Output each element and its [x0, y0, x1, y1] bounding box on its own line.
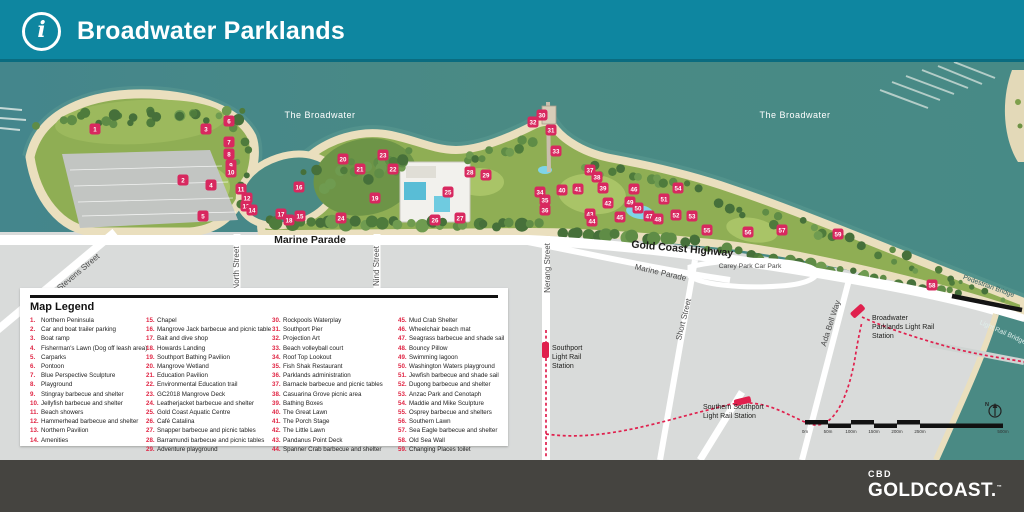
legend-item: 22.Environmental Education trail [146, 380, 272, 389]
tree-icon [735, 246, 743, 254]
poi-marker-25: 25 [443, 187, 454, 198]
tree-icon [634, 173, 642, 181]
tree-icon [534, 218, 543, 227]
legend-item-number: 23. [146, 390, 157, 399]
svg-text:53: 53 [689, 213, 696, 220]
tree-icon [695, 184, 703, 192]
legend-item: 12.Hammerhead barbecue and shelter [30, 417, 146, 426]
tree-icon [572, 227, 583, 238]
poi-marker-40: 40 [557, 185, 568, 196]
tree-icon [301, 169, 307, 175]
legend-item-number: 1. [30, 316, 41, 325]
page-title: Broadwater Parklands [77, 17, 345, 46]
svg-text:40: 40 [559, 187, 566, 194]
poi-marker-48: 48 [653, 214, 664, 225]
svg-text:18: 18 [286, 217, 293, 224]
poi-marker-20: 20 [338, 154, 349, 165]
tree-icon [684, 180, 690, 186]
legend-item: 5.Carparks [30, 353, 146, 362]
svg-text:31: 31 [548, 127, 555, 134]
legend-item-label: Jellyfish barbecue and shelter [41, 400, 123, 407]
tree-icon [407, 219, 415, 227]
legend-item: 16.Mangrove Jack barbecue and picnic tab… [146, 325, 272, 334]
legend-item-number: 28. [146, 436, 157, 445]
svg-text:19: 19 [372, 195, 379, 202]
legend-item-number: 35. [272, 362, 283, 371]
tree-icon [514, 144, 524, 154]
legend-item-number: 43. [272, 436, 283, 445]
svg-text:32: 32 [530, 119, 537, 126]
tree-icon [714, 198, 724, 208]
scale-label: 100m [845, 429, 857, 434]
legend-item-number: 45. [398, 316, 409, 325]
svg-text:57: 57 [779, 227, 786, 234]
legend-item: 14.Amenities [30, 436, 146, 445]
tree-icon [393, 220, 403, 230]
legend-item-number: 54. [398, 399, 409, 408]
poi-marker-55: 55 [702, 225, 713, 236]
poi-marker-18: 18 [284, 215, 295, 226]
legend-item-label: Howards Landing [157, 345, 205, 352]
water-label: The Broadwater [759, 110, 830, 120]
legend-item-label: Old Sea Wall [409, 437, 445, 444]
svg-text:58: 58 [929, 282, 936, 289]
legend-item-number: 40. [272, 408, 283, 417]
legend-item-label: Car and boat trailer parking [41, 326, 116, 333]
legend-item: 31.Southport Pier [272, 325, 398, 334]
tree-icon [60, 116, 68, 124]
poi-marker-46: 46 [629, 184, 640, 195]
legend-item-label: Dugong barbecue and shelter [409, 381, 491, 388]
tree-icon [325, 179, 336, 190]
legend-item-label: Mangrove Wetland [157, 363, 209, 370]
poi-marker-5: 5 [198, 211, 209, 222]
legend-item: 57.Sea Eagle barbecue and shelter [398, 426, 498, 435]
legend-item: 17.Bait and dive shop [146, 334, 272, 343]
legend-item-label: Barramundi barbecue and picnic tables [157, 437, 264, 444]
svg-text:11: 11 [238, 186, 245, 193]
svg-text:21: 21 [357, 166, 364, 173]
legend-item-number: 44. [272, 445, 283, 454]
tree-icon [800, 217, 807, 224]
legend-top-rule [30, 295, 498, 298]
legend-item-label: Projection Art [283, 335, 320, 342]
legend-column: 1.Northern Peninsula2.Car and boat trail… [30, 316, 146, 454]
legend-item-label: Snapper barbecue and picnic tables [157, 427, 256, 434]
tree-icon [203, 117, 210, 124]
svg-text:41: 41 [575, 186, 582, 193]
tree-icon [504, 218, 514, 228]
legend-item-label: Washington Waters playground [409, 363, 495, 370]
legend-item-number: 10. [30, 399, 41, 408]
scale-label: 200m [891, 429, 903, 434]
legend-item-label: Sea Eagle barbecue and shelter [409, 427, 497, 434]
svg-text:47: 47 [646, 213, 653, 220]
tree-icon [311, 165, 322, 176]
svg-text:48: 48 [655, 216, 662, 223]
legend-item-label: Northern Pavilion [41, 427, 88, 434]
legend-item: 50.Washington Waters playground [398, 362, 498, 371]
svg-text:44: 44 [589, 218, 596, 225]
svg-text:5: 5 [201, 213, 205, 220]
legend-item: 45.Mud Crab Shelter [398, 316, 498, 325]
svg-text:15: 15 [297, 213, 304, 220]
legend-item-label: Swimming lagoon [409, 354, 458, 361]
legend-item-label: Roof Top Lookout [283, 354, 331, 361]
tree-icon [874, 252, 882, 260]
tree-icon [610, 229, 620, 239]
poi-marker-42: 42 [603, 198, 614, 209]
legend-item-label: The Great Lawn [283, 409, 327, 416]
tree-icon [363, 174, 374, 185]
legend-item-number: 4. [30, 344, 41, 353]
brand-top: CBD [868, 469, 1002, 479]
legend-item: 47.Seagrass barbecue and shade sail [398, 334, 498, 343]
tree-icon [845, 233, 855, 243]
poi-marker-19: 19 [370, 193, 381, 204]
legend-item-label: Seagrass barbecue and shade sail [409, 335, 504, 342]
street-label: Carey Park Car Park [719, 263, 782, 270]
legend-item: 21.Education Pavilion [146, 371, 272, 380]
legend-item-number: 11. [30, 408, 41, 417]
legend-item-label: Pontoon [41, 363, 64, 370]
legend-item-label: Leatherjacket barbecue and shelter [157, 400, 254, 407]
legend-column: 15.Chapel16.Mangrove Jack barbecue and p… [146, 316, 272, 454]
legend-item-label: Casuarina Grove picnic area [283, 391, 361, 398]
svg-text:45: 45 [617, 214, 624, 221]
legend-item-label: Southport Pier [283, 326, 323, 333]
legend-item: 28.Barramundi barbecue and picnic tables [146, 436, 272, 445]
legend-item-number: 58. [398, 436, 409, 445]
legend-item: 46.Wheelchair beach mat [398, 325, 498, 334]
legend-item-number: 6. [30, 362, 41, 371]
legend-item: 24.Leatherjacket barbecue and shelter [146, 399, 272, 408]
legend-item-label: Barnacle barbecue and picnic tables [283, 381, 383, 388]
legend-item-number: 29. [146, 445, 157, 454]
legend-item-number: 5. [30, 353, 41, 362]
svg-text:30: 30 [539, 112, 546, 119]
tree-icon [725, 204, 735, 214]
tree-icon [350, 216, 361, 227]
tree-icon [969, 284, 974, 289]
legend-item-label: Spanner Crab barbecue and shelter [283, 446, 381, 453]
svg-text:52: 52 [673, 212, 680, 219]
legend-item: 18.Howards Landing [146, 344, 272, 353]
legend-item-number: 55. [398, 408, 409, 417]
legend-item-number: 27. [146, 426, 157, 435]
legend-item: 37.Barnacle barbecue and picnic tables [272, 380, 398, 389]
legend-item-label: Stingray barbecue and shelter [41, 391, 124, 398]
tree-icon [526, 220, 534, 228]
poi-marker-14: 14 [247, 205, 258, 216]
tree-icon [608, 168, 616, 176]
poi-marker-10: 10 [226, 167, 237, 178]
street-label: Nerang Street [543, 242, 552, 293]
legend-item: 44.Spanner Crab barbecue and shelter [272, 445, 398, 454]
legend-item-label: Fisherman's Lawn (Dog off leash area) [41, 345, 147, 352]
legend-item-label: The Little Lawn [283, 427, 325, 434]
legend-item-number: 38. [272, 390, 283, 399]
poi-marker-3: 3 [201, 124, 212, 135]
legend-item: 10.Jellyfish barbecue and shelter [30, 399, 146, 408]
legend-item-number: 3. [30, 334, 41, 343]
legend-item-label: Adventure playground [157, 446, 218, 453]
legend-item: 49.Swimming lagoon [398, 353, 498, 362]
poi-marker-23: 23 [378, 150, 389, 161]
poi-marker-56: 56 [743, 227, 754, 238]
scale-label: 0m [802, 429, 809, 434]
legend-item: 30.Rockpools Waterplay [272, 316, 398, 325]
legend-item: 43.Pandanus Point Deck [272, 436, 398, 445]
legend-item-label: The Porch Stage [283, 418, 329, 425]
tree-icon [902, 250, 912, 260]
tree-icon [505, 148, 514, 157]
tree-icon [175, 112, 184, 121]
tree-icon [32, 122, 40, 130]
svg-text:1: 1 [93, 126, 97, 133]
svg-text:22: 22 [390, 166, 397, 173]
poi-marker-45: 45 [615, 212, 626, 223]
poi-marker-1: 1 [90, 124, 101, 135]
poi-marker-51: 51 [659, 194, 670, 205]
legend-item: 11.Beach showers [30, 408, 146, 417]
poi-marker-7: 7 [224, 137, 235, 148]
legend-item: 34.Roof Top Lookout [272, 353, 398, 362]
legend-column: 45.Mud Crab Shelter46.Wheelchair beach m… [398, 316, 498, 454]
tree-icon [850, 268, 856, 274]
poi-marker-35: 35 [540, 195, 551, 206]
poi-marker-24: 24 [336, 213, 347, 224]
legend-item-label: Hammerhead barbecue and shelter [41, 418, 138, 425]
legend-item-label: Rockpools Waterplay [283, 317, 341, 324]
map-legend: Map Legend 1.Northern Peninsula2.Car and… [20, 288, 508, 446]
legend-item-number: 16. [146, 325, 157, 334]
legend-item-number: 52. [398, 380, 409, 389]
legend-item: 15.Chapel [146, 316, 272, 325]
legend-item-label: Anzac Park and Cenotaph [409, 391, 481, 398]
legend-item-label: Northern Peninsula [41, 317, 94, 324]
legend-item-label: Blue Perspective Sculpture [41, 372, 115, 379]
poi-marker-53: 53 [687, 211, 698, 222]
legend-item-label: Boat ramp [41, 335, 70, 342]
legend-item-number: 14. [30, 436, 41, 445]
poi-marker-15: 15 [295, 211, 306, 222]
poi-marker-31: 31 [546, 125, 557, 136]
legend-item-number: 42. [272, 426, 283, 435]
tree-icon [152, 112, 162, 122]
svg-text:26: 26 [432, 217, 439, 224]
legend-item: 2.Car and boat trailer parking [30, 325, 146, 334]
legend-item-number: 48. [398, 344, 409, 353]
poi-marker-8: 8 [224, 149, 235, 160]
legend-item: 26.Café Catalina [146, 417, 272, 426]
poi-marker-16: 16 [294, 182, 305, 193]
poi-marker-52: 52 [671, 210, 682, 221]
tree-icon [376, 217, 389, 230]
legend-item-label: Beach volleyball court [283, 345, 343, 352]
legend-item-number: 22. [146, 380, 157, 389]
legend-item-number: 26. [146, 417, 157, 426]
svg-text:25: 25 [445, 189, 452, 196]
legend-item-label: Café Catalina [157, 418, 195, 425]
scale-label: 500m [997, 429, 1009, 434]
tree-icon [244, 172, 250, 178]
tree-icon [947, 287, 953, 293]
legend-item-label: Maddie and Mike Sculpture [409, 400, 484, 407]
legend-item-label: Bouncy Pillow [409, 345, 448, 352]
brand-tm: ™ [997, 485, 1002, 491]
svg-text:10: 10 [228, 169, 235, 176]
poi-marker-58: 58 [927, 280, 938, 291]
tree-icon [190, 110, 197, 117]
legend-title: Map Legend [30, 301, 498, 313]
svg-text:56: 56 [745, 229, 752, 236]
legend-item: 7.Blue Perspective Sculpture [30, 371, 146, 380]
tree-icon [774, 212, 782, 220]
legend-item: 56.Southern Lawn [398, 417, 498, 426]
tree-icon [109, 109, 121, 121]
svg-text:8: 8 [227, 151, 231, 158]
svg-text:33: 33 [553, 148, 560, 155]
street-label: North Street [232, 246, 241, 290]
legend-item: 55.Osprey barbecue and shelters [398, 408, 498, 417]
legend-item-number: 18. [146, 344, 157, 353]
legend-item: 25.Gold Coast Aquatic Centre [146, 408, 272, 417]
poi-marker-6: 6 [224, 116, 235, 127]
legend-item-label: Osprey barbecue and shelters [409, 409, 492, 416]
legend-item-number: 25. [146, 408, 157, 417]
legend-item: 38.Casuarina Grove picnic area [272, 390, 398, 399]
tree-icon [348, 158, 355, 165]
tree-icon [129, 113, 138, 122]
pool [404, 182, 426, 200]
poi-marker-38: 38 [592, 172, 603, 183]
poster: i Broadwater Parklands [0, 0, 1024, 512]
legend-item-number: 7. [30, 371, 41, 380]
legend-item-number: 30. [272, 316, 283, 325]
street-label: Nind Street [372, 245, 381, 286]
poi-marker-4: 4 [206, 180, 217, 191]
legend-item-number: 31. [272, 325, 283, 334]
tree-icon [67, 115, 77, 125]
tree-icon [517, 135, 526, 144]
svg-text:59: 59 [835, 231, 842, 238]
legend-item-number: 34. [272, 353, 283, 362]
legend-item-number: 41. [272, 417, 283, 426]
tree-icon [891, 259, 897, 265]
svg-text:14: 14 [249, 207, 256, 214]
legend-item: 58.Old Sea Wall [398, 436, 498, 445]
legend-item-number: 36. [272, 371, 283, 380]
svg-text:42: 42 [605, 200, 612, 207]
legend-column: 30.Rockpools Waterplay31.Southport Pier3… [272, 316, 398, 454]
brand-main: GOLDCOAST. [868, 480, 997, 501]
tree-icon [814, 231, 823, 240]
tree-icon [239, 108, 245, 114]
legend-item-number: 32. [272, 334, 283, 343]
legend-item: 13.Northern Pavilion [30, 426, 146, 435]
poi-marker-59: 59 [833, 229, 844, 240]
legend-item: 42.The Little Lawn [272, 426, 398, 435]
poi-marker-36: 36 [540, 205, 551, 216]
legend-item-number: 17. [146, 334, 157, 343]
legend-item-label: Amenities [41, 437, 68, 444]
poi-marker-39: 39 [598, 183, 609, 194]
street-label: Marine Parade [274, 234, 346, 246]
tree-icon [471, 155, 479, 163]
legend-item-number: 53. [398, 390, 409, 399]
poi-marker-50: 50 [633, 203, 644, 214]
legend-item-label: Beach showers [41, 409, 83, 416]
legend-item-number: 19. [146, 353, 157, 362]
legend-item-number: 8. [30, 380, 41, 389]
tree-icon [616, 164, 625, 173]
tree-icon [1001, 298, 1006, 303]
legend-item: 52.Dugong barbecue and shelter [398, 380, 498, 389]
svg-text:54: 54 [675, 185, 682, 192]
legend-item: 51.Jewfish barbecue and shade sail [398, 371, 498, 380]
legend-item-label: Carparks [41, 354, 66, 361]
svg-text:51: 51 [661, 196, 668, 203]
legend-item: 53.Anzac Park and Cenotaph [398, 390, 498, 399]
legend-item: 40.The Great Lawn [272, 408, 398, 417]
tree-icon [405, 147, 412, 154]
legend-item: 1.Northern Peninsula [30, 316, 146, 325]
legend-item-number: 51. [398, 371, 409, 380]
legend-item: 23.GC2018 Mangrove Deck [146, 390, 272, 399]
poi-marker-21: 21 [355, 164, 366, 175]
legend-item: 8.Playground [30, 380, 146, 389]
tree-icon [479, 155, 486, 162]
legend-columns: 1.Northern Peninsula2.Car and boat trail… [30, 316, 498, 454]
legend-item-label: Bathing Boxes [283, 400, 323, 407]
svg-text:2: 2 [181, 177, 185, 184]
legend-item-number: 50. [398, 362, 409, 371]
poi-marker-29: 29 [481, 170, 492, 181]
svg-text:28: 28 [467, 169, 474, 176]
tree-icon [366, 216, 378, 228]
water-label: The Broadwater [284, 110, 355, 120]
legend-item-label: Changing Places toilet [409, 446, 471, 453]
tree-icon [245, 146, 252, 153]
legend-item-label: Jewfish barbecue and shade sail [409, 372, 499, 379]
legend-item-label: Gold Coast Aquatic Centre [157, 409, 230, 416]
poi-marker-2: 2 [178, 175, 189, 186]
legend-item: 35.Fish Shak Restaurant [272, 362, 398, 371]
legend-item-number: 56. [398, 417, 409, 426]
legend-item: 54.Maddie and Mike Sculpture [398, 399, 498, 408]
svg-text:20: 20 [340, 156, 347, 163]
legend-item-number: 37. [272, 380, 283, 389]
legend-item-label: Wheelchair beach mat [409, 326, 471, 333]
tree-icon [912, 268, 918, 274]
scale-label: 50m [824, 429, 833, 434]
north-label: N [985, 402, 989, 408]
legend-item-number: 39. [272, 399, 283, 408]
legend-item: 32.Projection Art [272, 334, 398, 343]
legend-item: 59.Changing Places toilet [398, 445, 498, 454]
legend-item-label: Fish Shak Restaurant [283, 363, 343, 370]
tree-icon [109, 120, 117, 128]
legend-item-label: Pandanus Point Deck [283, 437, 343, 444]
poi-marker-27: 27 [455, 213, 466, 224]
tree-icon [397, 154, 408, 165]
poi-marker-41: 41 [573, 184, 584, 195]
legend-item: 33.Beach volleyball court [272, 344, 398, 353]
legend-item: 4.Fisherman's Lawn (Dog off leash area) [30, 344, 146, 353]
svg-text:36: 36 [542, 207, 549, 214]
legend-item: 27.Snapper barbecue and picnic tables [146, 426, 272, 435]
